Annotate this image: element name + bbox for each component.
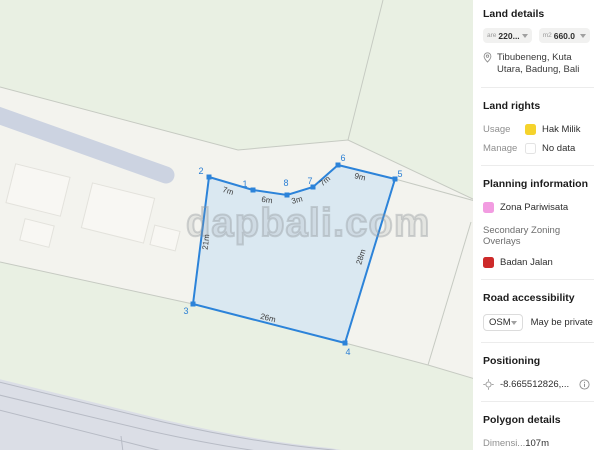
location-pin-icon	[483, 52, 492, 63]
polygon-detail-row: Dimensi... 107m	[483, 438, 590, 449]
polygon-vertex-handle[interactable]	[207, 175, 212, 180]
crosshair-icon	[483, 379, 494, 390]
dimension-label: Dimensi...	[483, 438, 525, 449]
divider	[481, 87, 594, 88]
road-source-select[interactable]: OSM	[483, 314, 523, 331]
road-accessibility-title: Road accessibility	[483, 292, 590, 304]
coordinates-value: -8.665512826,...	[500, 379, 569, 390]
polygon-vertex-handle[interactable]	[311, 185, 316, 190]
map-canvas[interactable]: dapbali.com 1 2 3 4 5 6 7 8 7m 6m 3m 7m …	[0, 0, 473, 450]
details-sidebar: Land details are 220... m2 660.0 Tibuben…	[473, 0, 600, 450]
usage-label: Usage	[483, 124, 525, 135]
divider	[481, 279, 594, 280]
chevron-down-icon	[580, 34, 586, 38]
polygon-vertex-handle[interactable]	[343, 341, 348, 346]
manage-label: Manage	[483, 143, 525, 154]
secondary-zoning-overlays-label: Secondary Zoning Overlays	[483, 225, 590, 247]
divider	[481, 342, 594, 343]
divider	[481, 165, 594, 166]
zone-value: Zona Pariwisata	[500, 202, 568, 213]
polygon-vertex-handle[interactable]	[393, 177, 398, 182]
manage-value: No data	[542, 143, 575, 154]
polygon-vertex-handle[interactable]	[191, 302, 196, 307]
are-value: 220...	[498, 31, 519, 41]
polygon-vertex-handle[interactable]	[285, 193, 290, 198]
usage-color-swatch	[525, 124, 536, 135]
land-size-are-select[interactable]: are 220...	[483, 28, 532, 43]
dimension-value: 107m	[525, 438, 549, 449]
land-rights-title: Land rights	[483, 100, 590, 112]
are-unit-label: are	[487, 32, 496, 39]
land-details-title: Land details	[483, 8, 590, 20]
road-source-value: OSM	[489, 317, 511, 328]
zone-color-swatch	[483, 202, 494, 213]
location-text: Tibubeneng, Kuta Utara, Badung, Bali	[497, 52, 589, 76]
manage-color-swatch	[525, 143, 536, 154]
overlay-value: Badan Jalan	[500, 257, 553, 268]
chevron-down-icon	[522, 34, 528, 38]
positioning-title: Positioning	[483, 355, 590, 367]
map-graphics	[0, 0, 473, 450]
bottom-road	[0, 378, 352, 450]
chevron-down-icon	[511, 321, 517, 325]
divider	[481, 401, 594, 402]
m2-unit-label: m2	[543, 32, 552, 39]
polygon-vertex-handle[interactable]	[251, 188, 256, 193]
planning-title: Planning information	[483, 178, 590, 190]
m2-value: 660.0	[554, 31, 575, 41]
info-icon[interactable]	[579, 379, 590, 390]
polygon-details-title: Polygon details	[483, 414, 590, 426]
overlay-color-swatch	[483, 257, 494, 268]
polygon-vertex-handle[interactable]	[336, 163, 341, 168]
land-plot-app: dapbali.com 1 2 3 4 5 6 7 8 7m 6m 3m 7m …	[0, 0, 600, 450]
usage-value: Hak Milik	[542, 124, 581, 135]
road-privacy-note: May be private	[531, 317, 593, 328]
land-size-m2-select[interactable]: m2 660.0	[539, 28, 590, 43]
